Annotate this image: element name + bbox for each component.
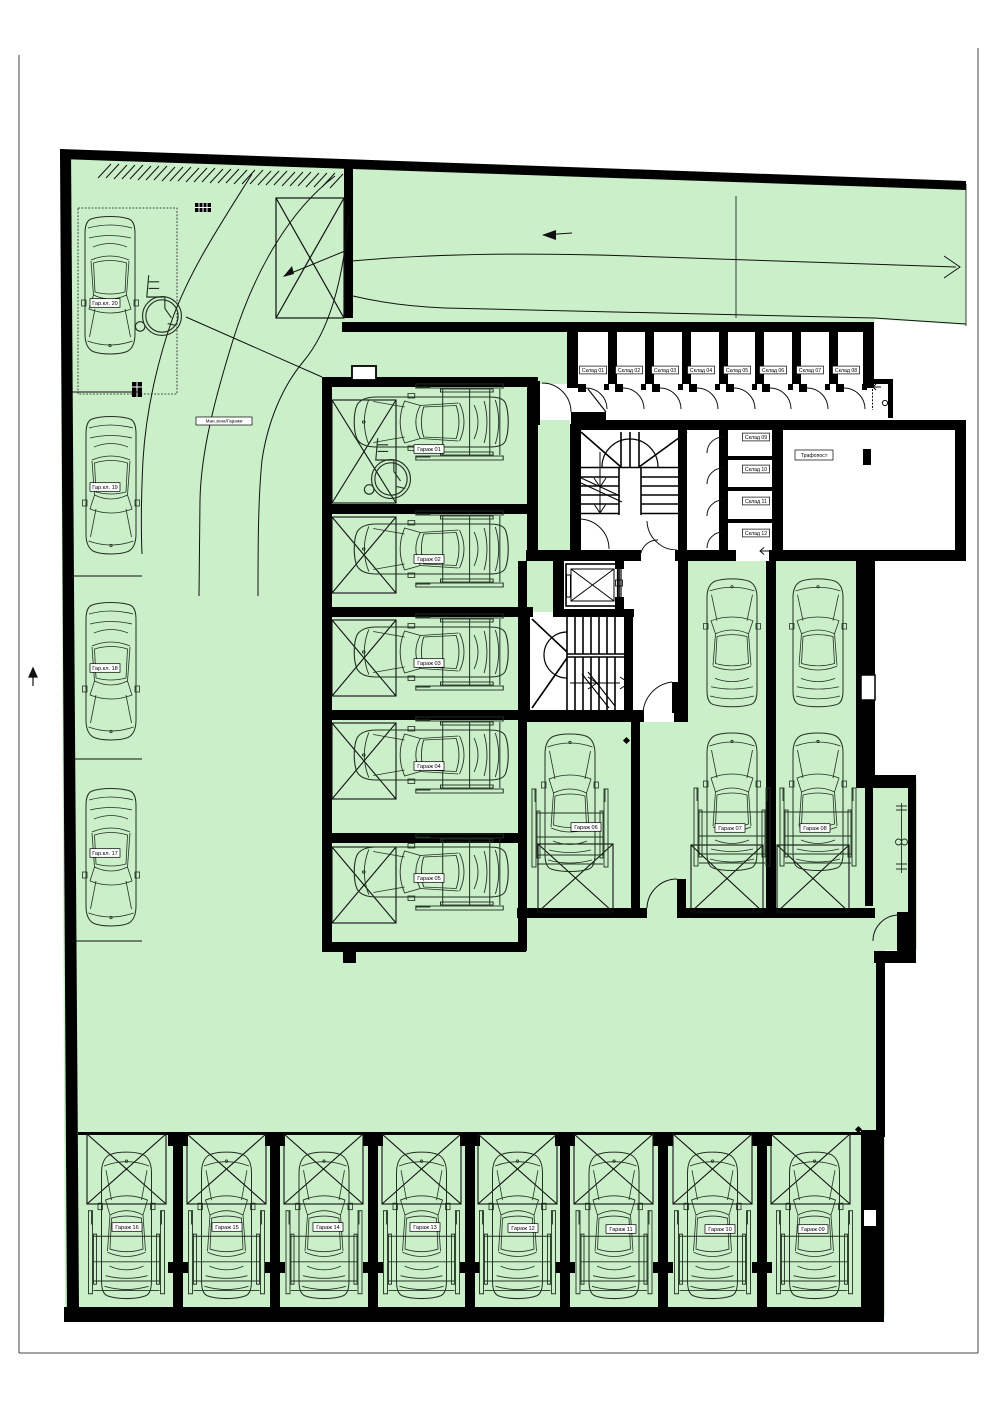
- svg-text:Склад 01: Склад 01: [582, 368, 604, 374]
- svg-text:Склад 11: Склад 11: [745, 499, 767, 505]
- svg-text:Гараж 11: Гараж 11: [609, 1227, 632, 1233]
- svg-text:Гараж 02: Гараж 02: [417, 557, 441, 563]
- svg-text:Склад 10: Склад 10: [745, 467, 767, 473]
- svg-text:Трафопост: Трафопост: [801, 453, 828, 459]
- svg-text:Гараж 10: Гараж 10: [708, 1227, 732, 1233]
- svg-text:Склад 07: Склад 07: [799, 368, 821, 374]
- svg-text:Склад 12: Склад 12: [745, 531, 767, 537]
- svg-text:Гараж 16: Гараж 16: [115, 1225, 139, 1231]
- svg-text:Склад 03: Склад 03: [654, 368, 676, 374]
- svg-text:Гар.кл. 20: Гар.кл. 20: [92, 301, 118, 307]
- svg-text:Склад 08: Склад 08: [835, 368, 857, 374]
- svg-text:Склад 09: Склад 09: [745, 435, 767, 441]
- svg-text:Гараж 08: Гараж 08: [803, 826, 827, 832]
- svg-text:Гараж 04: Гараж 04: [417, 764, 441, 770]
- svg-text:Склад 05: Склад 05: [726, 368, 748, 374]
- svg-text:Гар.кл. 18: Гар.кл. 18: [92, 666, 118, 672]
- svg-text:Гараж 03: Гараж 03: [417, 661, 441, 667]
- svg-text:Гар.кл. 19: Гар.кл. 19: [92, 485, 118, 491]
- svg-text:Гараж 14: Гараж 14: [316, 1225, 340, 1231]
- svg-text:Гар.кл. 17: Гар.кл. 17: [92, 851, 118, 857]
- svg-text:Гараж 05: Гараж 05: [417, 876, 441, 882]
- svg-text:Гараж 09: Гараж 09: [801, 1227, 825, 1233]
- svg-text:Склад 06: Склад 06: [762, 368, 784, 374]
- svg-text:Гараж 01: Гараж 01: [417, 447, 441, 453]
- svg-text:Склад 04: Склад 04: [690, 368, 712, 374]
- svg-text:Гараж 06: Гараж 06: [574, 825, 598, 831]
- svg-text:Гараж 12: Гараж 12: [511, 1226, 535, 1232]
- svg-text:Гараж 07: Гараж 07: [718, 826, 742, 832]
- svg-text:Гараж 15: Гараж 15: [215, 1225, 239, 1231]
- svg-text:Гараж 13: Гараж 13: [413, 1225, 437, 1231]
- svg-text:Ман.зона/Гаражи: Ман.зона/Гаражи: [206, 419, 243, 424]
- svg-text:Склад 02: Склад 02: [618, 368, 640, 374]
